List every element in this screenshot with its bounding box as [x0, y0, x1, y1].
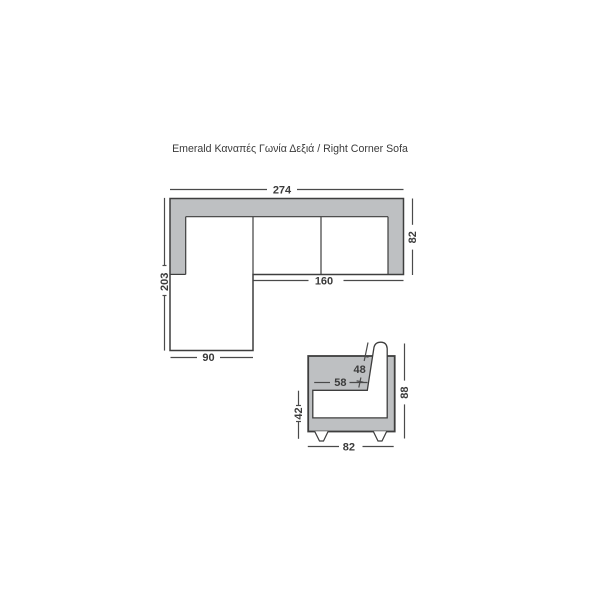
svg-text:48: 48: [353, 364, 365, 376]
svg-text:88: 88: [399, 386, 411, 398]
svg-text:274: 274: [273, 185, 292, 197]
svg-text:82: 82: [343, 442, 355, 454]
svg-text:42: 42: [293, 407, 305, 419]
svg-text:Emerald Καναπές Γωνία Δεξιά /: Emerald Καναπές Γωνία Δεξιά / Right Corn…: [172, 143, 408, 155]
svg-text:90: 90: [202, 352, 214, 364]
svg-text:82: 82: [407, 231, 419, 243]
svg-text:203: 203: [159, 273, 171, 291]
svg-text:58: 58: [334, 377, 346, 389]
svg-text:160: 160: [315, 276, 333, 288]
